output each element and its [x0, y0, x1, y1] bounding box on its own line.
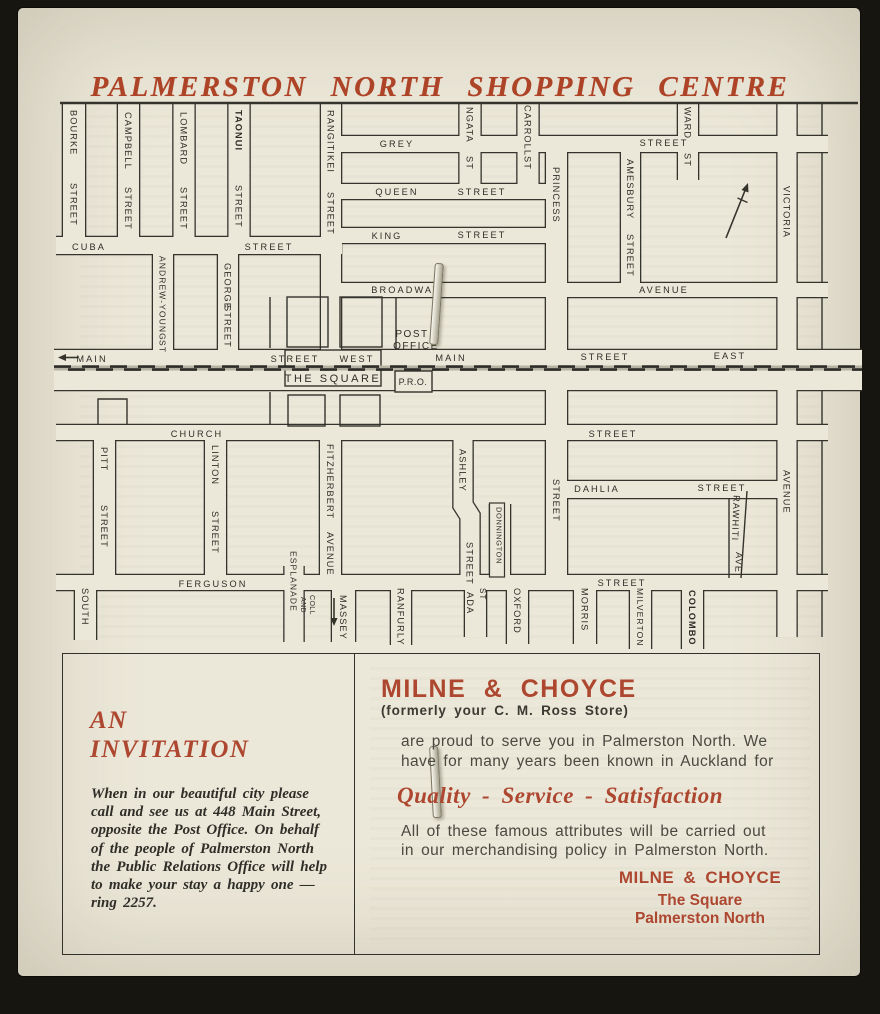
street-label: STREET — [625, 234, 635, 277]
invitation-line: call and see us at 448 Main Street, — [91, 803, 343, 821]
street-label: ADA — [465, 592, 475, 614]
invitation-line: of the people of Palmerston North — [91, 840, 343, 858]
street-label: DAHLIA — [574, 484, 620, 494]
street-label: OXFORD — [512, 588, 522, 634]
street-label: BOURKE — [69, 110, 79, 155]
church-street-notch — [98, 399, 127, 425]
milne-signoff-line: MILNE & CHOYCE — [575, 868, 825, 888]
street-label: NGATA — [465, 107, 475, 143]
street-label: STREET — [698, 483, 747, 493]
street-label: CHURCH — [171, 429, 223, 439]
street-label: STREET — [245, 242, 294, 252]
street-label: RANFURLY — [396, 588, 406, 646]
street-label: ST — [478, 588, 487, 600]
street-label: AVENUE — [782, 470, 792, 514]
milne-line: in our merchandising policy in Palmersto… — [401, 842, 801, 861]
street-label: EAST — [714, 351, 746, 361]
street-label: TAONUI — [234, 110, 244, 151]
street-label: AMESBURY — [625, 159, 635, 219]
street-label: STREET — [458, 230, 507, 240]
milne-title: MILNE & CHOYCE — [381, 675, 637, 704]
street-label: ST — [158, 340, 168, 353]
milne-subtitle: (formerly your C. M. Ross Store) — [381, 703, 629, 718]
milne-line: are proud to serve you in Palmerston Nor… — [401, 732, 791, 752]
invitation-body: When in our beautiful city please call a… — [91, 785, 343, 912]
street-label: WEST — [340, 354, 375, 364]
street-label: STREET — [589, 429, 638, 439]
street-label: STREET — [326, 192, 336, 235]
street-label: COLOMBO — [687, 590, 697, 646]
street-label: AVENUE — [325, 532, 335, 576]
street-label: AVENUE — [639, 285, 689, 295]
street-label: COLL — [308, 595, 315, 615]
street-label: STREET — [271, 354, 320, 364]
street-label: RAWHITI — [730, 495, 742, 541]
street-label: STREET — [465, 542, 475, 585]
square-block-se — [340, 395, 380, 426]
street-label: FITZHERBERT — [325, 444, 335, 519]
street-label: CARROLL — [523, 105, 533, 156]
street-label: STREET — [598, 578, 647, 588]
street-label: LOMBARD — [179, 112, 189, 165]
street-label: RANGITIKEI — [326, 110, 336, 173]
street-label: MAIN — [435, 353, 466, 363]
invitation-heading-line: INVITATION — [90, 735, 249, 764]
street-label: MILVERTON — [635, 588, 645, 647]
street-label: STREET — [223, 305, 233, 348]
street-label: DONNINGTON — [495, 507, 504, 564]
street-label: STREET — [581, 352, 630, 362]
street-label: STREET — [179, 187, 189, 230]
invitation-heading: AN INVITATION — [90, 706, 249, 764]
street-label: CAMPBELL — [123, 112, 133, 170]
street-label: MORRIS — [580, 588, 590, 631]
street-label: ESPLANADE — [289, 551, 299, 612]
street-label: STREET — [551, 479, 561, 522]
invitation-line: opposite the Post Office. On behalf — [91, 821, 343, 839]
milne-signoff-line: Palmerston North — [575, 910, 825, 928]
street-label: ANDREW-YOUNG — [158, 256, 168, 341]
street-label: BROADWAY — [371, 285, 440, 295]
street-label: ST — [465, 156, 475, 170]
street-label: VICTORIA — [782, 186, 792, 238]
street-label: THE SQUARE — [285, 373, 382, 385]
milne-line: have for many years been known in Auckla… — [401, 752, 791, 772]
railway-line — [54, 367, 862, 370]
bottom-panel: AN INVITATION When in our beautiful city… — [62, 653, 820, 955]
street-label: POST — [395, 329, 428, 340]
street-label: STREET — [640, 138, 689, 148]
milne-signoff: MILNE & CHOYCE The Square Palmerston Nor… — [575, 868, 825, 928]
street-label: AND — [299, 597, 306, 613]
invitation-line: the Public Relations Office will help — [91, 858, 343, 876]
square-block-sw — [288, 395, 325, 426]
street-label: STREET — [123, 187, 133, 230]
street-label: STREET — [234, 185, 244, 228]
street-label: SOUTH — [80, 588, 90, 626]
square-block-ne — [340, 297, 382, 347]
invitation-line: to make your stay a happy one — — [91, 876, 343, 894]
street-label: AVE — [733, 552, 744, 573]
invitation-line: ring 2257. — [91, 894, 343, 912]
street-label: FERGUSON — [179, 579, 248, 589]
scanned-brochure-page: { "page_title": "PALMERSTON NORTH SHOPPI… — [0, 0, 880, 1014]
street-label: MAIN — [76, 354, 107, 364]
street-label: WARD — [683, 107, 693, 139]
street-label: STREET — [458, 187, 507, 197]
street-label: PRINCESS — [551, 167, 561, 223]
milne-paragraph: are proud to serve you in Palmerston Nor… — [401, 732, 791, 772]
street-label: MASSEY — [338, 595, 348, 640]
street-label: ST — [523, 156, 533, 170]
milne-slogan: Quality - Service - Satisfaction — [397, 783, 723, 809]
street-label: QUEEN — [375, 187, 418, 197]
street-label: GEORGE — [223, 263, 233, 310]
panel-divider — [354, 654, 355, 954]
street-label: PITT — [99, 447, 109, 471]
street-label: P.R.O. — [399, 377, 428, 387]
invitation-line: When in our beautiful city please — [91, 785, 343, 803]
milne-line: All of these famous attributes will be c… — [401, 823, 801, 842]
street-label: STREET — [99, 505, 109, 548]
milne-paragraph: All of these famous attributes will be c… — [401, 823, 801, 860]
street-label: KING — [372, 231, 403, 241]
street-label: CUBA — [72, 242, 106, 252]
street-label: GREY — [380, 139, 414, 149]
north-arrow-icon — [726, 183, 749, 238]
street-label: STREET — [210, 511, 220, 554]
milne-signoff-line: The Square — [575, 892, 825, 910]
invitation-heading-line: AN — [90, 706, 249, 735]
street-label: STREET — [69, 183, 79, 226]
street-label: ASHLEY — [458, 449, 468, 492]
street-label: ST — [683, 153, 693, 167]
street-label: LINTON — [210, 445, 220, 485]
